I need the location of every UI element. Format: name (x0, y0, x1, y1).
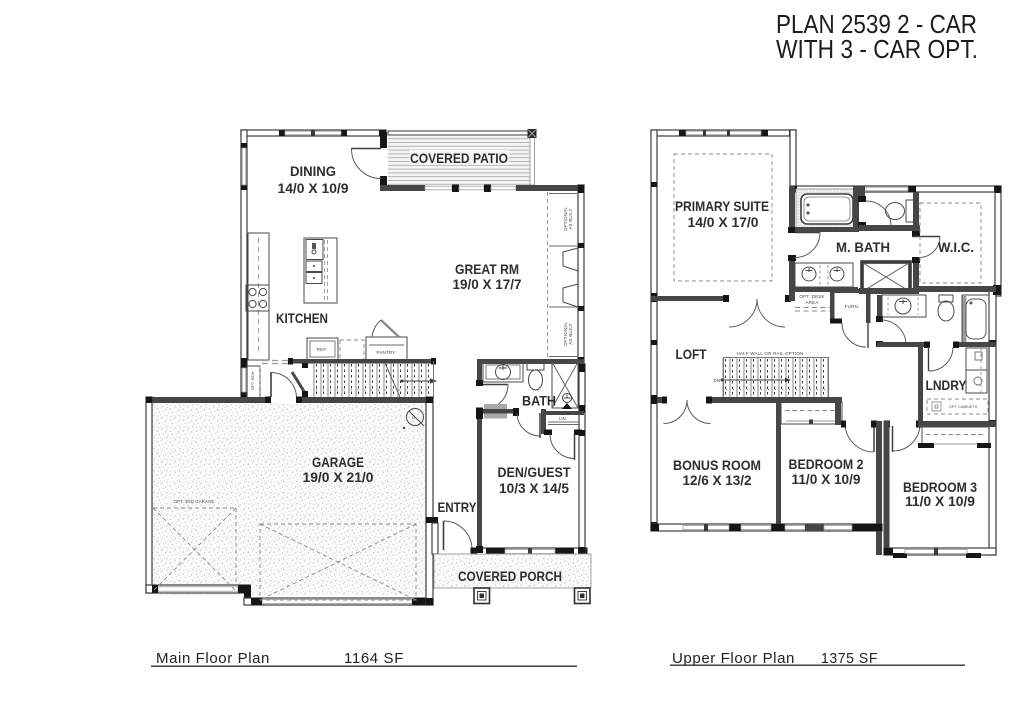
svg-text:12/6 X 13/2: 12/6 X 13/2 (683, 472, 752, 488)
svg-text:M. BATH: M. BATH (836, 239, 890, 255)
svg-text:GREAT RM: GREAT RM (455, 261, 519, 277)
svg-text:DEN/GUEST: DEN/GUEST (498, 464, 571, 480)
svg-text:Main Floor Plan: Main Floor Plan (156, 650, 270, 667)
svg-text:BATH: BATH (522, 393, 556, 409)
svg-text:ENTRY: ENTRY (438, 499, 478, 515)
svg-text:19/0 X 17/7: 19/0 X 17/7 (453, 276, 522, 292)
svg-text:1375 SF: 1375 SF (821, 650, 878, 667)
svg-text:COVERED PORCH: COVERED PORCH (458, 568, 562, 584)
svg-text:OPT. 3RD GARAGE: OPT. 3RD GARAGE (174, 499, 215, 504)
svg-text:PANTRY: PANTRY (376, 350, 395, 355)
svg-text:DN: DN (714, 378, 721, 383)
svg-text:COVERED PATIO: COVERED PATIO (410, 150, 508, 166)
svg-text:LIN.: LIN. (559, 416, 567, 421)
svg-text:BONUS ROOM: BONUS ROOM (673, 457, 761, 473)
svg-text:14/0 X 10/9: 14/0 X 10/9 (278, 180, 349, 196)
svg-text:FURN.: FURN. (845, 304, 860, 309)
svg-text:DINING: DINING (290, 163, 336, 179)
svg-text:HALF WALL OR RAIL OPTION: HALF WALL OR RAIL OPTION (736, 351, 803, 356)
svg-text:Upper Floor Plan: Upper Floor Plan (672, 650, 795, 667)
svg-text:OPT. DESK: OPT. DESK (799, 294, 824, 299)
svg-text:LOFT: LOFT (676, 346, 707, 362)
svg-text:1164 SF: 1164 SF (344, 650, 404, 667)
svg-text:11/0 X 10/9: 11/0 X 10/9 (792, 471, 861, 487)
svg-text:BEDROOM 2: BEDROOM 2 (789, 456, 864, 472)
svg-text:AS BUILT: AS BUILT (568, 208, 573, 229)
svg-text:14/0 X 17/0: 14/0 X 17/0 (688, 214, 759, 230)
svg-text:LNDRY: LNDRY (926, 377, 968, 393)
svg-text:REF.: REF. (317, 347, 328, 352)
svg-text:AREA: AREA (805, 300, 818, 305)
svg-text:W.I.C.: W.I.C. (938, 239, 974, 255)
svg-text:OPT. CABINETS: OPT. CABINETS (949, 405, 978, 409)
svg-text:OPT. BCH: OPT. BCH (250, 371, 255, 390)
svg-text:GARAGE: GARAGE (312, 454, 364, 470)
svg-text:PRIMARY SUITE: PRIMARY SUITE (675, 198, 769, 214)
svg-text:11/0 X 10/9: 11/0 X 10/9 (905, 493, 975, 509)
svg-text:19/0 X 21/0: 19/0 X 21/0 (303, 469, 374, 485)
svg-text:KITCHEN: KITCHEN (276, 310, 328, 326)
svg-text:D: D (412, 415, 415, 420)
svg-text:AS BUILT: AS BUILT (568, 323, 573, 344)
svg-text:10/3 X 14/5: 10/3 X 14/5 (499, 480, 569, 496)
svg-text:WITH 3 - CAR OPT.: WITH 3 - CAR OPT. (776, 34, 978, 64)
